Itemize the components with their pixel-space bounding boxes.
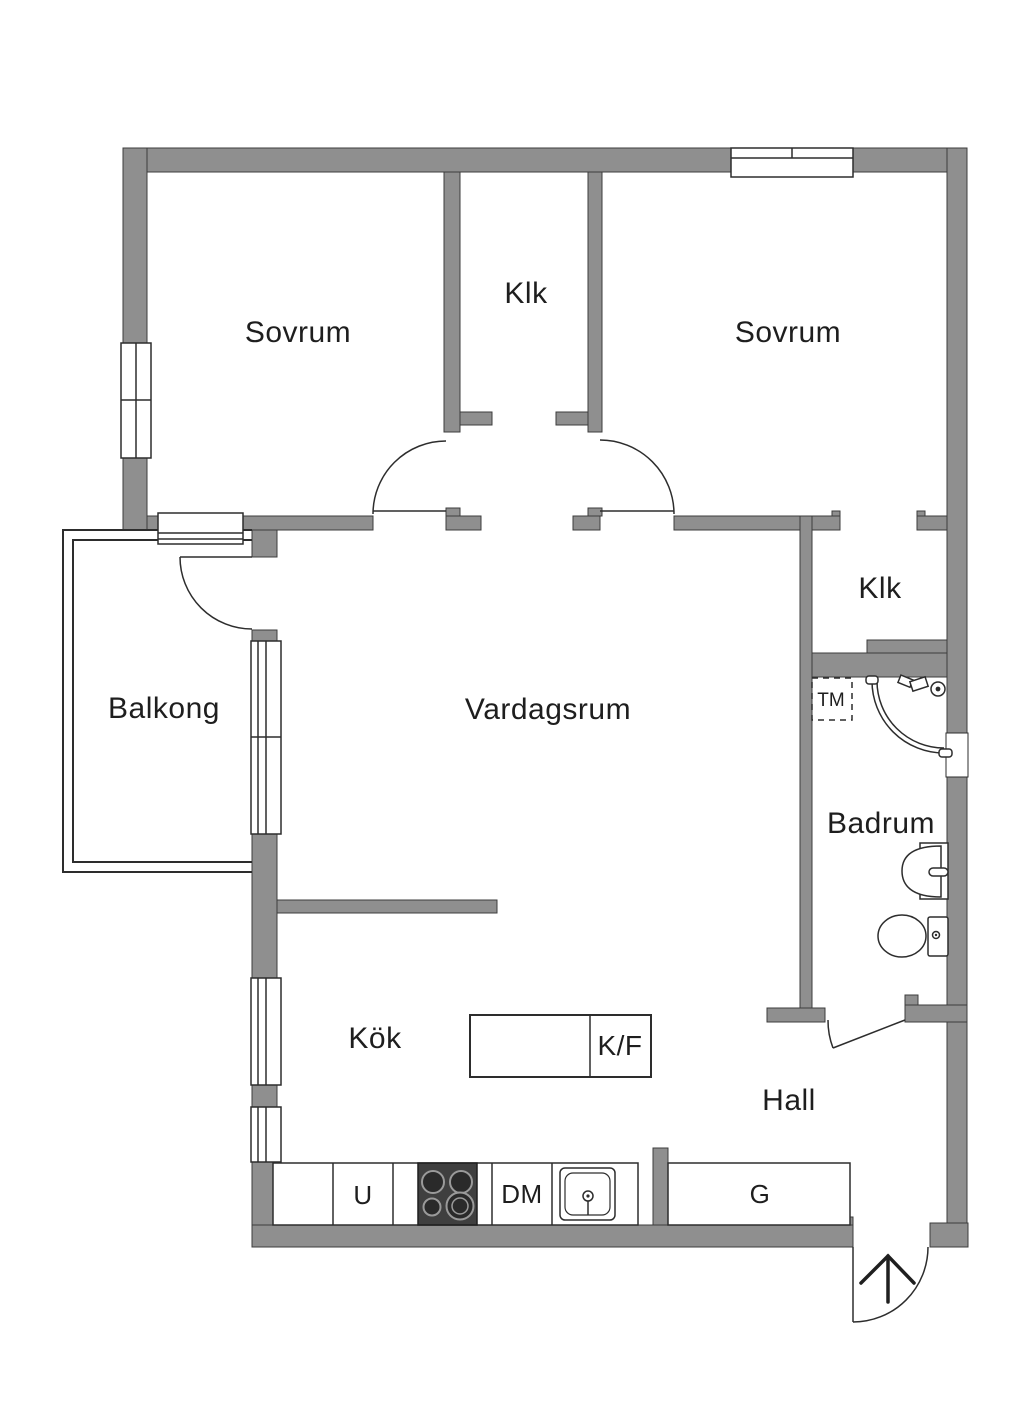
wall-segment [917, 516, 947, 530]
wall-segment [573, 516, 600, 530]
wall-bottom [252, 1225, 853, 1247]
fixture-label-washing-machine: TM [817, 690, 844, 711]
door-jamb [588, 508, 602, 516]
fixture-label-wardrobe: G [750, 1179, 771, 1209]
door-balcony [180, 557, 252, 629]
window-kitchen-1 [251, 978, 281, 1085]
room-label-hall: Hall [762, 1084, 816, 1117]
wall-step [867, 640, 947, 653]
door-jamb [832, 511, 840, 516]
wall-bottom-right-piece [930, 1223, 968, 1247]
room-label-kitchen: Kök [348, 1022, 402, 1055]
room-label-bedroom-right: Sovrum [735, 316, 841, 349]
fixture-label-dishwasher: DM [501, 1179, 542, 1209]
wall-segment [446, 516, 481, 530]
window-bedroom-balcony [158, 513, 243, 544]
toilet-icon [878, 915, 948, 957]
room-label-closet-right: Klk [858, 572, 902, 605]
fixture-label-oven: U [353, 1180, 372, 1210]
sink-icon [902, 843, 948, 899]
wall-segment [252, 1085, 277, 1107]
room-label-bathroom: Badrum [827, 807, 935, 840]
wall-living-bathroom [800, 516, 812, 1008]
fixture-label-fridge-freezer: K/F [597, 1030, 642, 1061]
door-bedroom-right [600, 440, 674, 514]
wall-bathroom-top [812, 653, 947, 677]
entrance-arrow-icon [861, 1256, 914, 1302]
wall-segment [252, 834, 277, 978]
wall-left [123, 148, 147, 530]
floorplan-page: Sovrum Klk Sovrum Klk Balkong Vardagsrum… [0, 0, 1024, 1428]
wall-hall-stub [653, 1148, 668, 1225]
wall-bathroom-bottom [905, 1005, 967, 1022]
door-jamb [446, 508, 460, 516]
window-bedroom-left [121, 343, 151, 458]
wall-stub [556, 412, 588, 425]
room-label-closet-middle: Klk [504, 277, 548, 310]
wall-stub [767, 1008, 825, 1022]
window-living-balcony [251, 641, 281, 834]
wall-notch [905, 995, 918, 1005]
door-bathroom [828, 1020, 905, 1048]
room-label-balcony: Balkong [108, 692, 220, 725]
stove-icon [418, 1163, 477, 1225]
floorplan-drawing: Sovrum Klk Sovrum Klk Balkong Vardagsrum… [0, 0, 1024, 1428]
door-bedroom-left [373, 441, 446, 514]
wall-segment [674, 516, 840, 530]
wall-closet-left [444, 172, 460, 432]
room-label-bedroom-left: Sovrum [245, 316, 351, 349]
window-kitchen-2 [251, 1107, 281, 1162]
room-label-living-room: Vardagsrum [465, 693, 631, 726]
wall-segment [252, 530, 277, 557]
wall-segment [252, 630, 277, 641]
kitchen-sink-icon [560, 1168, 615, 1220]
wall-stub [460, 412, 492, 425]
door-jamb [917, 511, 925, 516]
window-bedroom-right [731, 148, 853, 177]
wall-kitchen-stub [277, 900, 497, 913]
shower-icon [866, 675, 952, 757]
wall-closet-right [588, 172, 602, 432]
wall-right [947, 148, 967, 1247]
